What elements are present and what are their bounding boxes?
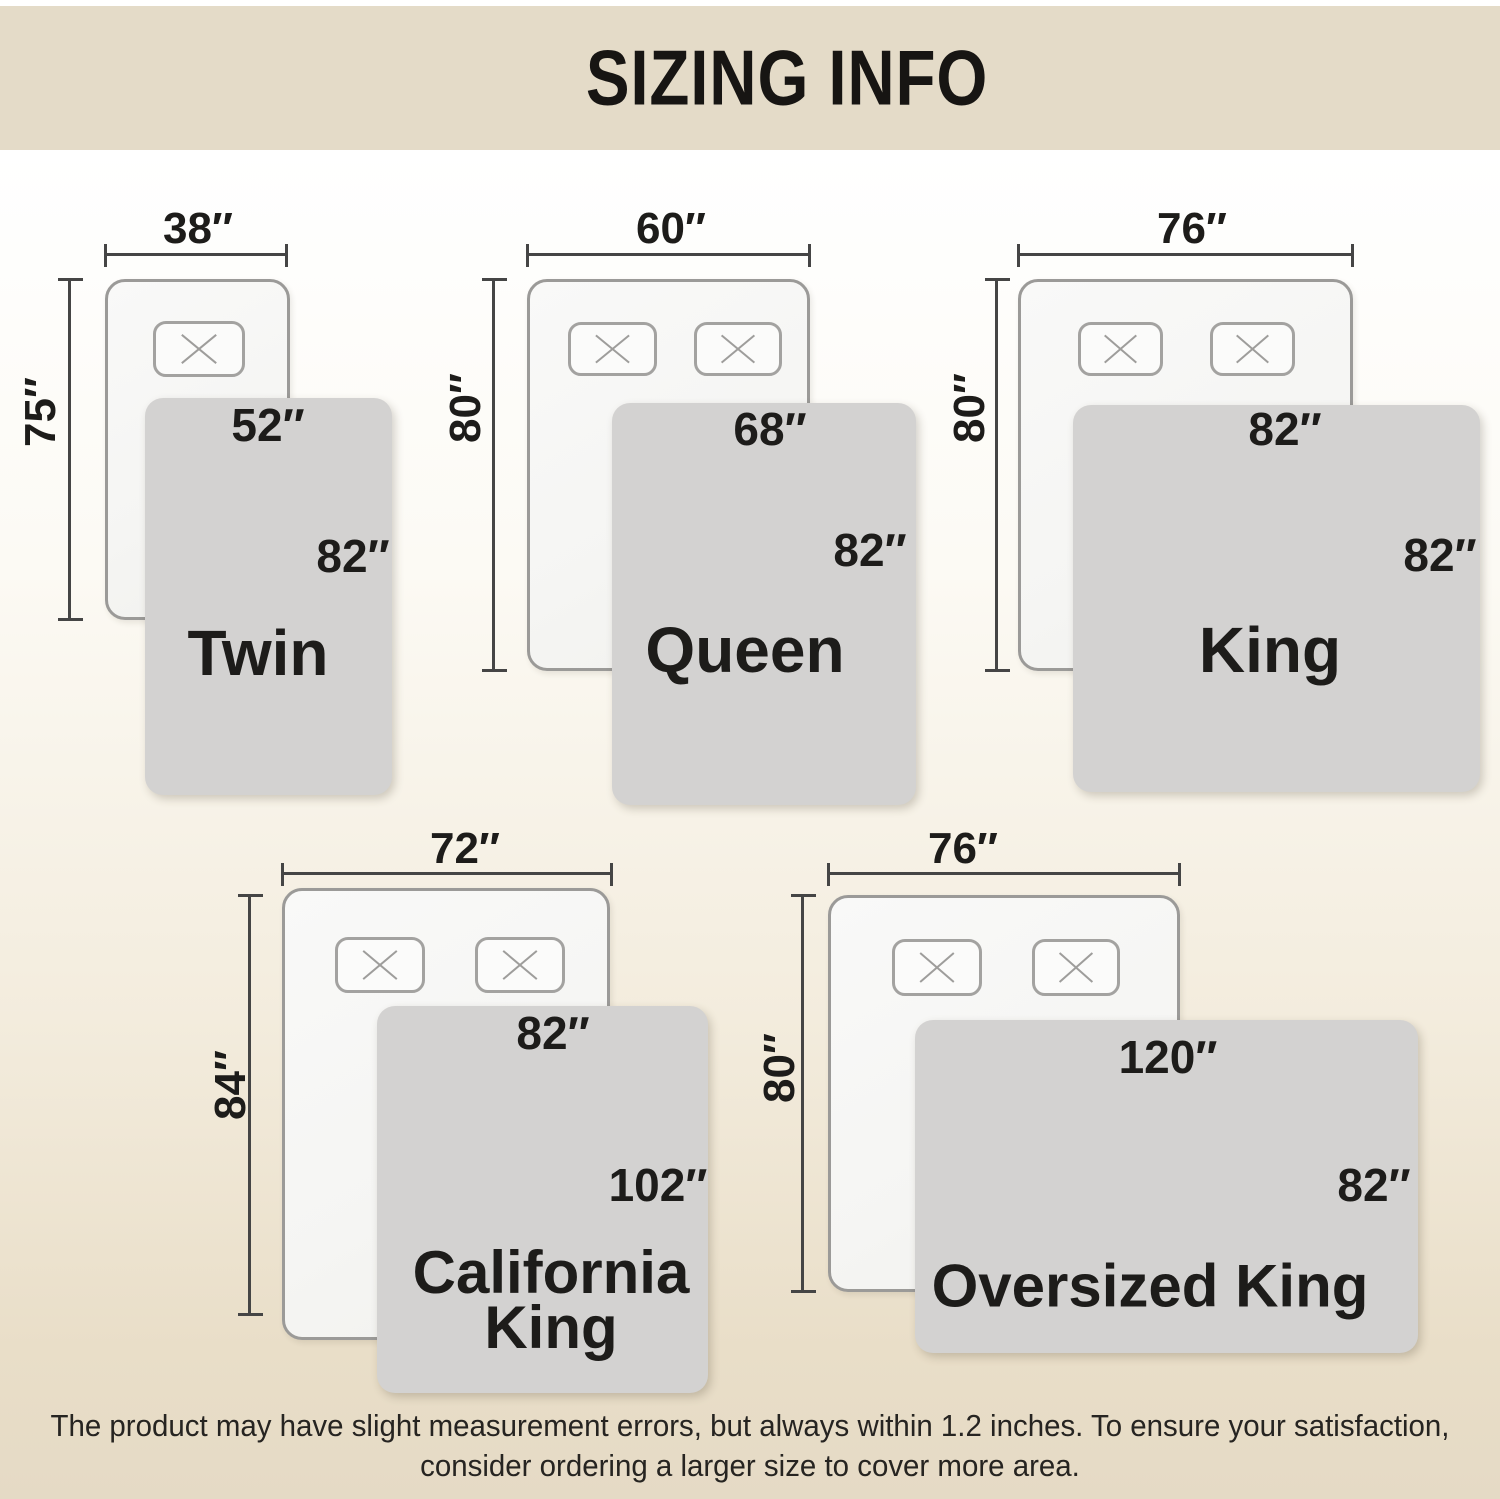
mattress-width-label: 72″ [430, 824, 500, 874]
size-name: King [1199, 621, 1341, 679]
mattress-width-label: 76″ [1157, 204, 1227, 254]
blanket [612, 403, 916, 805]
length-dimension-line [68, 279, 71, 620]
width-dimension-line [282, 872, 612, 875]
blanket-length-label: 82″ [1403, 528, 1476, 582]
pillow-icon [694, 322, 782, 376]
pillow-cross-icon [895, 942, 979, 993]
pillow-cross-icon [571, 325, 654, 373]
mattress-length-label: 75″ [16, 377, 66, 447]
width-dimension-line [105, 253, 287, 256]
pillow-cross-icon [478, 940, 562, 990]
mattress-length-label: 80″ [755, 1033, 805, 1103]
blanket-length-label: 102″ [609, 1158, 708, 1212]
mattress-width-label: 76″ [928, 824, 998, 874]
blanket-width-label: 82″ [516, 1006, 589, 1060]
pillow-icon [892, 939, 982, 996]
mattress-length-label: 80″ [441, 373, 491, 443]
pillow-icon [475, 937, 565, 993]
pillow-icon [1078, 322, 1163, 376]
blanket [1073, 405, 1480, 792]
blanket-length-label: 82″ [833, 523, 906, 577]
mattress-length-label: 84″ [206, 1050, 256, 1120]
size-name: Twin [188, 624, 329, 682]
blanket-width-label: 68″ [733, 402, 806, 456]
pillow-icon [1032, 939, 1120, 996]
blanket-width-label: 82″ [1248, 402, 1321, 456]
footer-note: The product may have slight measurement … [38, 1406, 1463, 1486]
pillow-icon [153, 321, 245, 377]
width-dimension-line [1018, 253, 1353, 256]
mattress-width-label: 60″ [636, 204, 706, 254]
size-name: Queen [645, 621, 844, 679]
blanket-length-label: 82″ [1337, 1158, 1410, 1212]
size-name: Oversized King [930, 1259, 1370, 1314]
width-dimension-line [527, 253, 810, 256]
pillow-cross-icon [156, 324, 242, 374]
page-title: SIZING INFO [586, 33, 988, 124]
length-dimension-line [492, 279, 495, 671]
pillow-icon [1210, 322, 1295, 376]
size-name: California King [371, 1245, 731, 1355]
length-dimension-line [995, 279, 998, 671]
pillow-cross-icon [1081, 325, 1160, 373]
blanket-length-label: 82″ [316, 529, 389, 583]
sizing-infographic: SIZING INFO 38″ 75″ 52″ 82″ Twin 60″ 80″ [0, 0, 1500, 1499]
pillow-icon [568, 322, 657, 376]
pillow-cross-icon [1035, 942, 1117, 993]
blanket [145, 398, 392, 795]
width-dimension-line [828, 872, 1180, 875]
mattress-width-label: 38″ [163, 204, 233, 254]
mattress-length-label: 80″ [945, 373, 995, 443]
pillow-cross-icon [697, 325, 779, 373]
pillow-cross-icon [1213, 325, 1292, 373]
blanket-width-label: 52″ [231, 398, 304, 452]
pillow-cross-icon [338, 940, 422, 990]
pillow-icon [335, 937, 425, 993]
blanket-width-label: 120″ [1119, 1030, 1218, 1084]
